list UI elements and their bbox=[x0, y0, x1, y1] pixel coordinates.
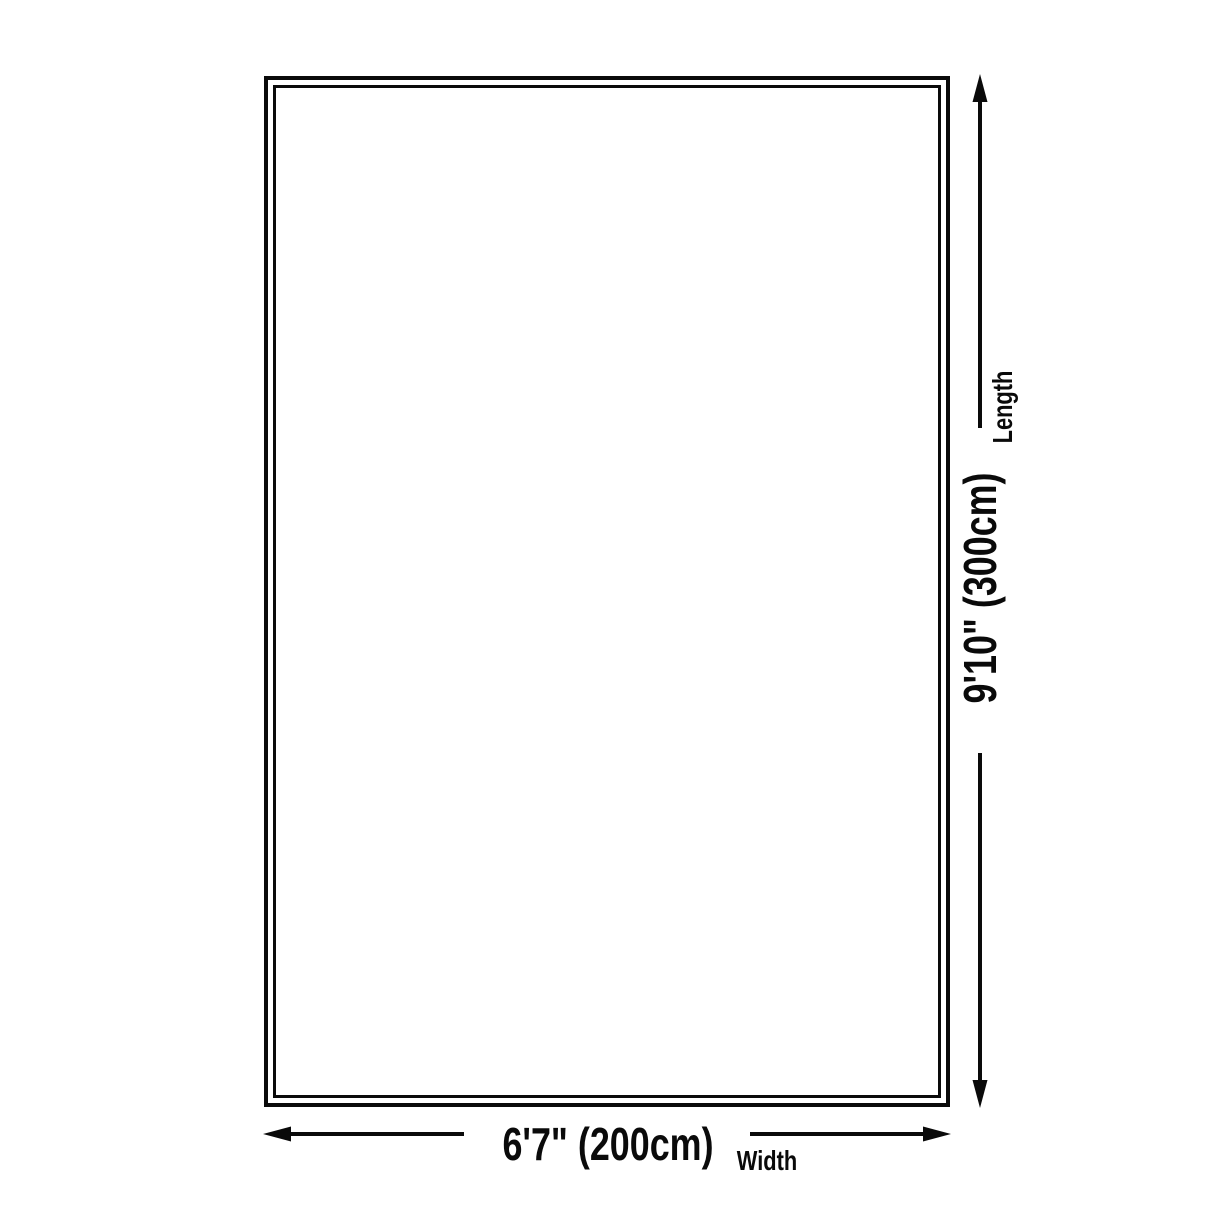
length-arrow-down-icon bbox=[973, 753, 988, 1108]
length-value-label: 9'10" (300cm) bbox=[957, 472, 1003, 703]
width-value-label: 6'7" (200cm) bbox=[502, 1121, 713, 1167]
width-arrow-left-icon bbox=[263, 1127, 464, 1142]
dimension-arrows bbox=[0, 0, 1214, 1214]
rug-size-diagram: 9'10" (300cm) Length 6'7" (200cm) Width bbox=[0, 0, 1214, 1214]
length-axis-label: Length bbox=[989, 371, 1017, 444]
length-arrow-up-icon bbox=[973, 74, 988, 428]
width-arrow-right-icon bbox=[750, 1127, 951, 1142]
width-axis-label: Width bbox=[737, 1147, 797, 1175]
